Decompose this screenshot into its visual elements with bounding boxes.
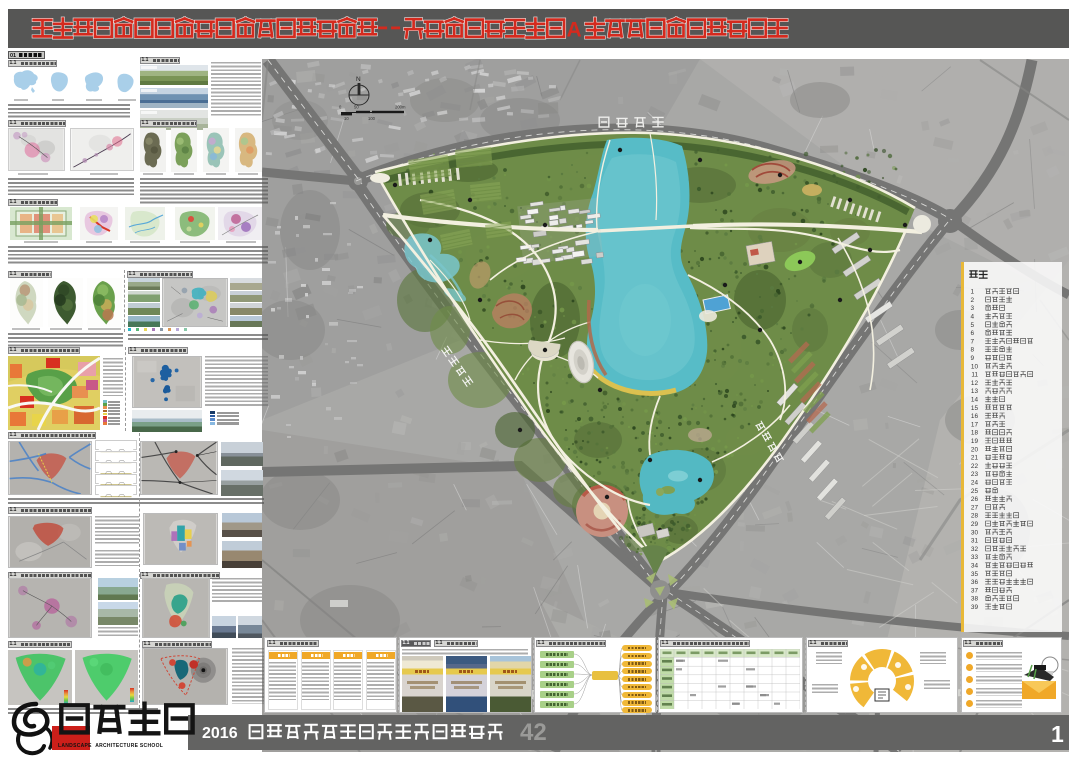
svg-text:19: 19 — [971, 438, 979, 445]
svg-text:1: 1 — [970, 289, 974, 296]
svg-text:9: 9 — [970, 355, 974, 362]
svg-text:28: 28 — [971, 513, 979, 520]
svg-text:37: 37 — [971, 587, 979, 594]
svg-text:25: 25 — [971, 488, 979, 495]
svg-text:33: 33 — [971, 554, 979, 561]
svg-text:4: 4 — [970, 314, 974, 321]
svg-text:29: 29 — [971, 521, 979, 528]
svg-text:N: N — [356, 76, 361, 83]
svg-text:6: 6 — [970, 330, 974, 337]
svg-text:A: A — [567, 19, 582, 42]
svg-text:10: 10 — [344, 116, 349, 121]
svg-text:11: 11 — [971, 372, 978, 379]
svg-text:100: 100 — [368, 116, 376, 121]
svg-text:3: 3 — [970, 305, 974, 312]
svg-text:8: 8 — [970, 347, 974, 354]
svg-text:36: 36 — [971, 579, 979, 586]
svg-text:7: 7 — [970, 338, 974, 345]
svg-text:18: 18 — [971, 430, 979, 437]
svg-text:24: 24 — [971, 480, 979, 487]
svg-text:2: 2 — [970, 297, 974, 304]
svg-text:5: 5 — [970, 322, 974, 329]
svg-text:22: 22 — [971, 463, 979, 470]
svg-text:23: 23 — [971, 471, 979, 478]
svg-text:50: 50 — [354, 105, 359, 110]
svg-text:16: 16 — [971, 413, 979, 420]
svg-text:27: 27 — [971, 504, 979, 511]
svg-text:10: 10 — [971, 363, 979, 370]
svg-text:31: 31 — [971, 538, 979, 545]
svg-text:39: 39 — [971, 604, 979, 611]
svg-text:32: 32 — [971, 546, 979, 553]
svg-text:13: 13 — [971, 388, 979, 395]
svg-text:2016: 2016 — [202, 725, 238, 742]
svg-text:20: 20 — [971, 446, 979, 453]
svg-text:38: 38 — [971, 596, 979, 603]
svg-text:30: 30 — [971, 529, 979, 536]
svg-text:14: 14 — [971, 397, 979, 404]
svg-text:35: 35 — [971, 571, 979, 578]
svg-text:200m: 200m — [395, 105, 406, 110]
svg-text:12: 12 — [971, 380, 979, 387]
svg-text:34: 34 — [971, 563, 979, 570]
svg-text:26: 26 — [971, 496, 979, 503]
svg-text:21: 21 — [971, 455, 979, 462]
svg-text:17: 17 — [971, 421, 979, 428]
svg-text:15: 15 — [971, 405, 979, 412]
